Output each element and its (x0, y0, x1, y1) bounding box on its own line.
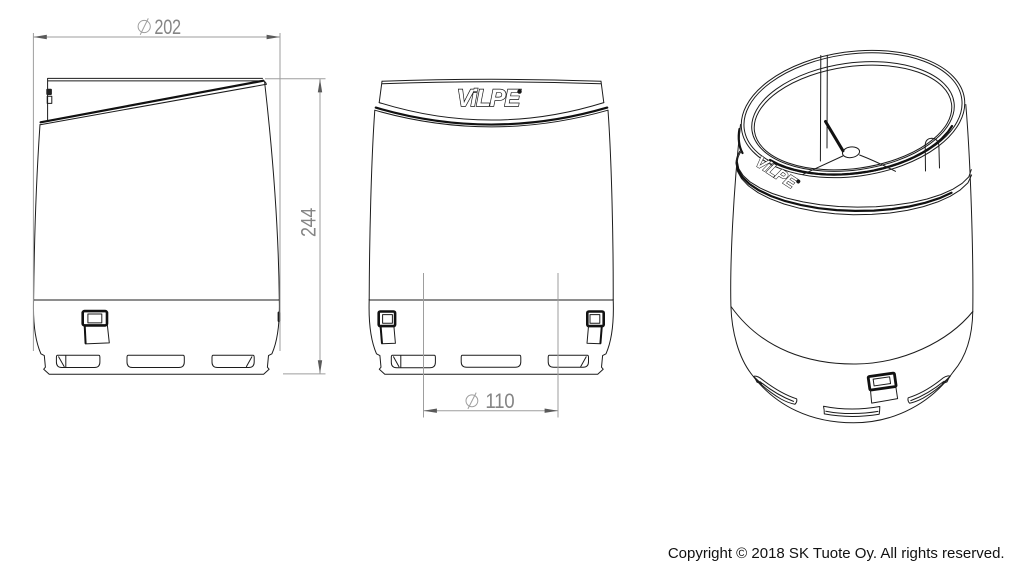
svg-text:Copyright © 2018 SK Tuote Oy.: Copyright © 2018 SK Tuote Oy. All rights… (668, 545, 1005, 562)
svg-text:ViLPE: ViLPE (457, 85, 522, 112)
svg-text:244: 244 (298, 207, 321, 237)
svg-text:202: 202 (154, 16, 181, 39)
svg-text:110: 110 (485, 390, 514, 413)
